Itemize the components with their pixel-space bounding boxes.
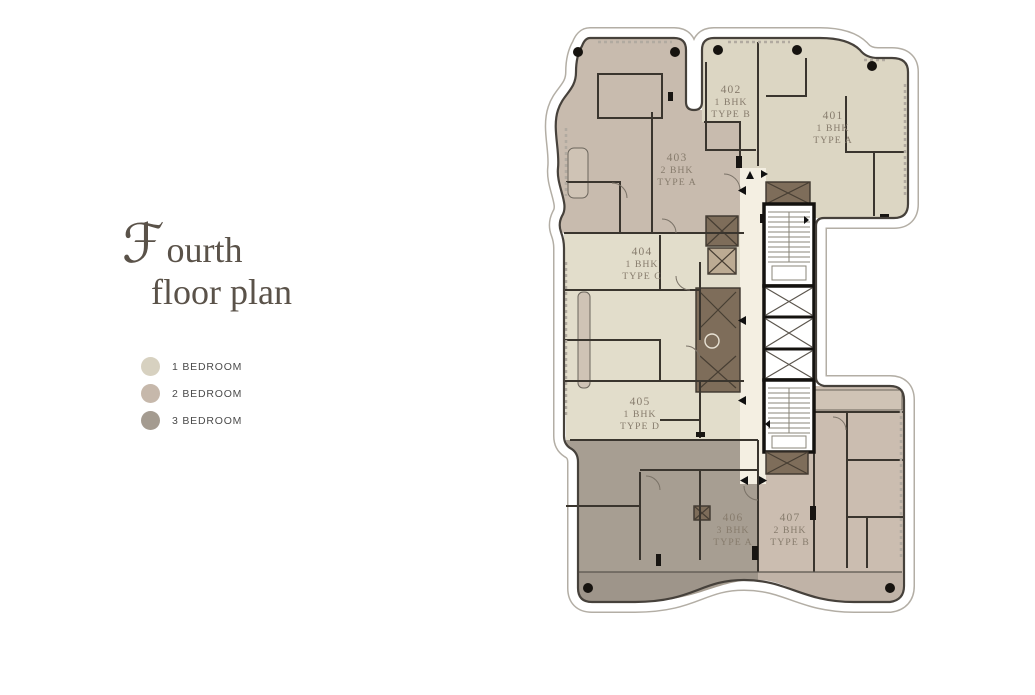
floor-plan-drawing: 401 1 BHK TYPE A 402 1 BHK TYPE B 403 2 … bbox=[0, 0, 1035, 695]
shaft-box-2 bbox=[708, 248, 736, 274]
floor-plan-page: ℱ ourth floor plan 1 BEDROOM 2 BEDROOM 3… bbox=[0, 0, 1035, 695]
svg-text:TYPE C: TYPE C bbox=[622, 271, 661, 282]
svg-text:403: 403 bbox=[667, 152, 688, 164]
svg-text:TYPE D: TYPE D bbox=[620, 421, 660, 432]
balcony-left-403 bbox=[568, 148, 588, 198]
duct-box-bottom bbox=[766, 452, 808, 474]
svg-text:402: 402 bbox=[721, 84, 742, 96]
duct-box-top bbox=[766, 182, 810, 204]
column-dot bbox=[583, 583, 593, 593]
svg-text:TYPE A: TYPE A bbox=[657, 177, 696, 188]
column-dot bbox=[573, 47, 583, 57]
svg-text:404: 404 bbox=[632, 246, 653, 258]
svg-text:1 BHK: 1 BHK bbox=[816, 123, 849, 134]
balcony-407-band bbox=[812, 390, 902, 410]
svg-text:2 BHK: 2 BHK bbox=[773, 525, 806, 536]
staircase-top bbox=[764, 204, 814, 286]
column-dot bbox=[867, 61, 877, 71]
shaft-box-1 bbox=[706, 216, 738, 246]
column-dot bbox=[792, 45, 802, 55]
svg-text:407: 407 bbox=[780, 512, 801, 524]
column-dot bbox=[670, 47, 680, 57]
svg-text:405: 405 bbox=[630, 396, 651, 408]
svg-text:TYPE A: TYPE A bbox=[813, 135, 852, 146]
core bbox=[764, 182, 814, 474]
column-dot bbox=[885, 583, 895, 593]
column-dot bbox=[713, 45, 723, 55]
svg-text:TYPE A: TYPE A bbox=[713, 537, 752, 548]
svg-text:TYPE B: TYPE B bbox=[711, 109, 750, 120]
svg-text:2 BHK: 2 BHK bbox=[660, 165, 693, 176]
svg-text:1 BHK: 1 BHK bbox=[714, 97, 747, 108]
svg-text:TYPE B: TYPE B bbox=[770, 537, 809, 548]
svg-text:406: 406 bbox=[723, 512, 744, 524]
elevator-bank bbox=[764, 286, 814, 380]
shaft-strip-mid bbox=[696, 288, 740, 392]
svg-text:1 BHK: 1 BHK bbox=[623, 409, 656, 420]
shaft-box-3 bbox=[694, 506, 710, 520]
svg-text:1 BHK: 1 BHK bbox=[625, 259, 658, 270]
staircase-bottom bbox=[764, 380, 814, 452]
svg-text:3 BHK: 3 BHK bbox=[716, 525, 749, 536]
svg-text:401: 401 bbox=[823, 110, 844, 122]
